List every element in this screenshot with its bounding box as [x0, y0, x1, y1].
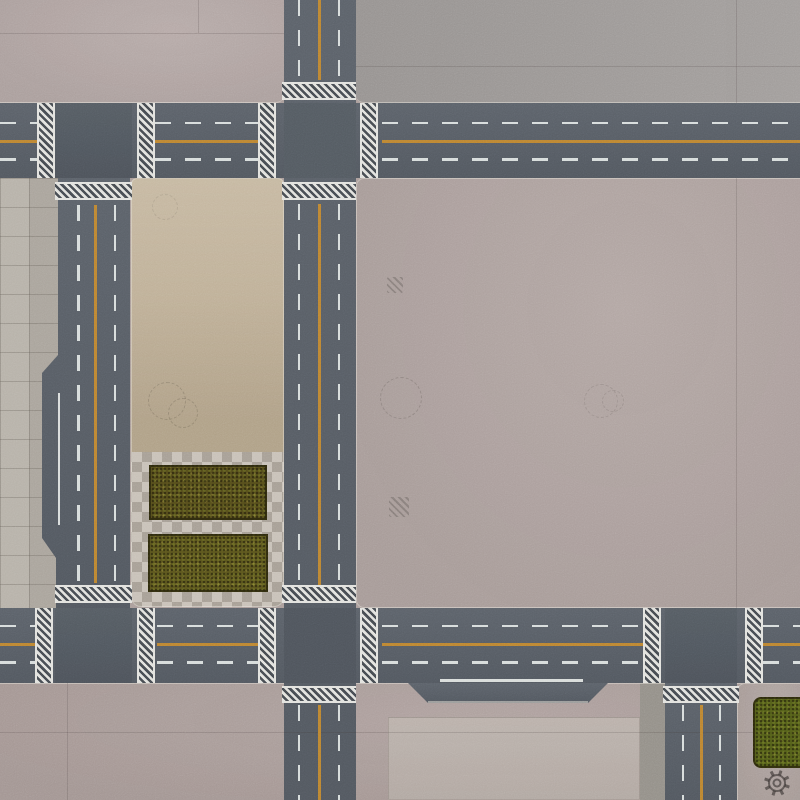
- grass-patch-2: [148, 534, 268, 592]
- crosswalk: [137, 103, 155, 178]
- crosswalk: [137, 608, 155, 683]
- center-line-orange: [700, 705, 703, 800]
- lane-dashes: [382, 625, 643, 628]
- lane-dashes: [338, 705, 341, 800]
- expansion-seam: [0, 33, 284, 34]
- lane-dashes: [382, 158, 800, 161]
- lane-dashes: [382, 122, 800, 125]
- lane-dashes: [0, 158, 37, 161]
- intersection-west-bottom: [55, 608, 132, 683]
- intersection-center-top: [284, 103, 356, 178]
- lane-dashes: [157, 661, 258, 664]
- crosswalk: [258, 608, 276, 683]
- utility-hatch: [387, 277, 403, 293]
- crosswalk: [282, 686, 356, 703]
- lane-dashes: [719, 705, 722, 800]
- expansion-seam: [0, 732, 800, 733]
- expansion-seam: [67, 683, 68, 800]
- expansion-seam: [736, 0, 737, 103]
- crosswalk: [282, 585, 356, 603]
- center-line-orange: [382, 643, 643, 646]
- plaza-top-left: [0, 0, 284, 103]
- plaza-center-right: [356, 178, 800, 608]
- center-line-orange: [318, 705, 321, 800]
- expansion-seam: [356, 66, 800, 67]
- crosswalk: [37, 103, 55, 178]
- pocket-solid-line: [440, 679, 583, 682]
- crosswalk: [55, 585, 132, 603]
- lane-dashes: [298, 0, 301, 80]
- expansion-seam: [736, 178, 737, 608]
- lane-dashes: [298, 204, 301, 585]
- manhole-circle: [602, 390, 624, 412]
- crosswalk: [643, 608, 661, 683]
- lane-dashes: [338, 204, 341, 585]
- lane-dashes: [0, 661, 35, 664]
- lane-dashes: [763, 625, 800, 628]
- lane-dashes: [157, 625, 258, 628]
- lane-dashes: [155, 158, 258, 161]
- crosswalk: [35, 608, 53, 683]
- lane-dashes: [338, 0, 341, 80]
- intersection-center-bottom: [284, 608, 356, 683]
- center-line-orange: [94, 205, 97, 583]
- lane-dashes: [298, 705, 301, 800]
- lane-dashes: [155, 122, 258, 125]
- grass-patch-1: [149, 465, 267, 520]
- center-line-orange: [0, 140, 37, 143]
- manhole-circle: [380, 377, 422, 419]
- center-line-orange: [155, 140, 258, 143]
- intersection-west-top: [55, 103, 132, 178]
- crosswalk: [745, 608, 763, 683]
- crosswalk: [663, 686, 739, 703]
- crosswalk: [282, 182, 356, 200]
- utility-hatch: [389, 497, 409, 517]
- crosswalk: [258, 103, 276, 178]
- concrete-pad: [388, 717, 640, 800]
- crosswalk: [360, 608, 378, 683]
- curb-strip-southeast: [640, 683, 665, 800]
- center-line-orange: [318, 0, 321, 80]
- manhole-circle: [152, 194, 178, 220]
- crosswalk: [360, 103, 378, 178]
- center-line-orange: [382, 140, 800, 143]
- game-mat: [0, 0, 800, 800]
- center-line-orange: [763, 643, 800, 646]
- intersection-southeast: [665, 608, 737, 683]
- road-merge-pocket: [408, 683, 608, 703]
- lane-dashes: [0, 625, 35, 628]
- crosswalk: [282, 82, 356, 100]
- center-line-orange: [0, 643, 35, 646]
- lane-dashes: [763, 661, 800, 664]
- bay-solid-line: [58, 393, 60, 525]
- center-line-orange: [318, 204, 321, 585]
- lane-dashes: [682, 705, 685, 800]
- lane-dashes: [114, 205, 117, 583]
- lane-dashes: [77, 205, 80, 583]
- center-line-orange: [157, 643, 258, 646]
- expansion-seam: [198, 0, 199, 33]
- manhole-circle: [168, 398, 198, 428]
- grass-patch-3: [753, 697, 800, 768]
- plaza-top-right: [356, 0, 800, 103]
- pocket-curb-line: [428, 701, 588, 703]
- crosswalk: [55, 182, 132, 200]
- lane-dashes: [0, 122, 37, 125]
- lane-dashes: [382, 661, 643, 664]
